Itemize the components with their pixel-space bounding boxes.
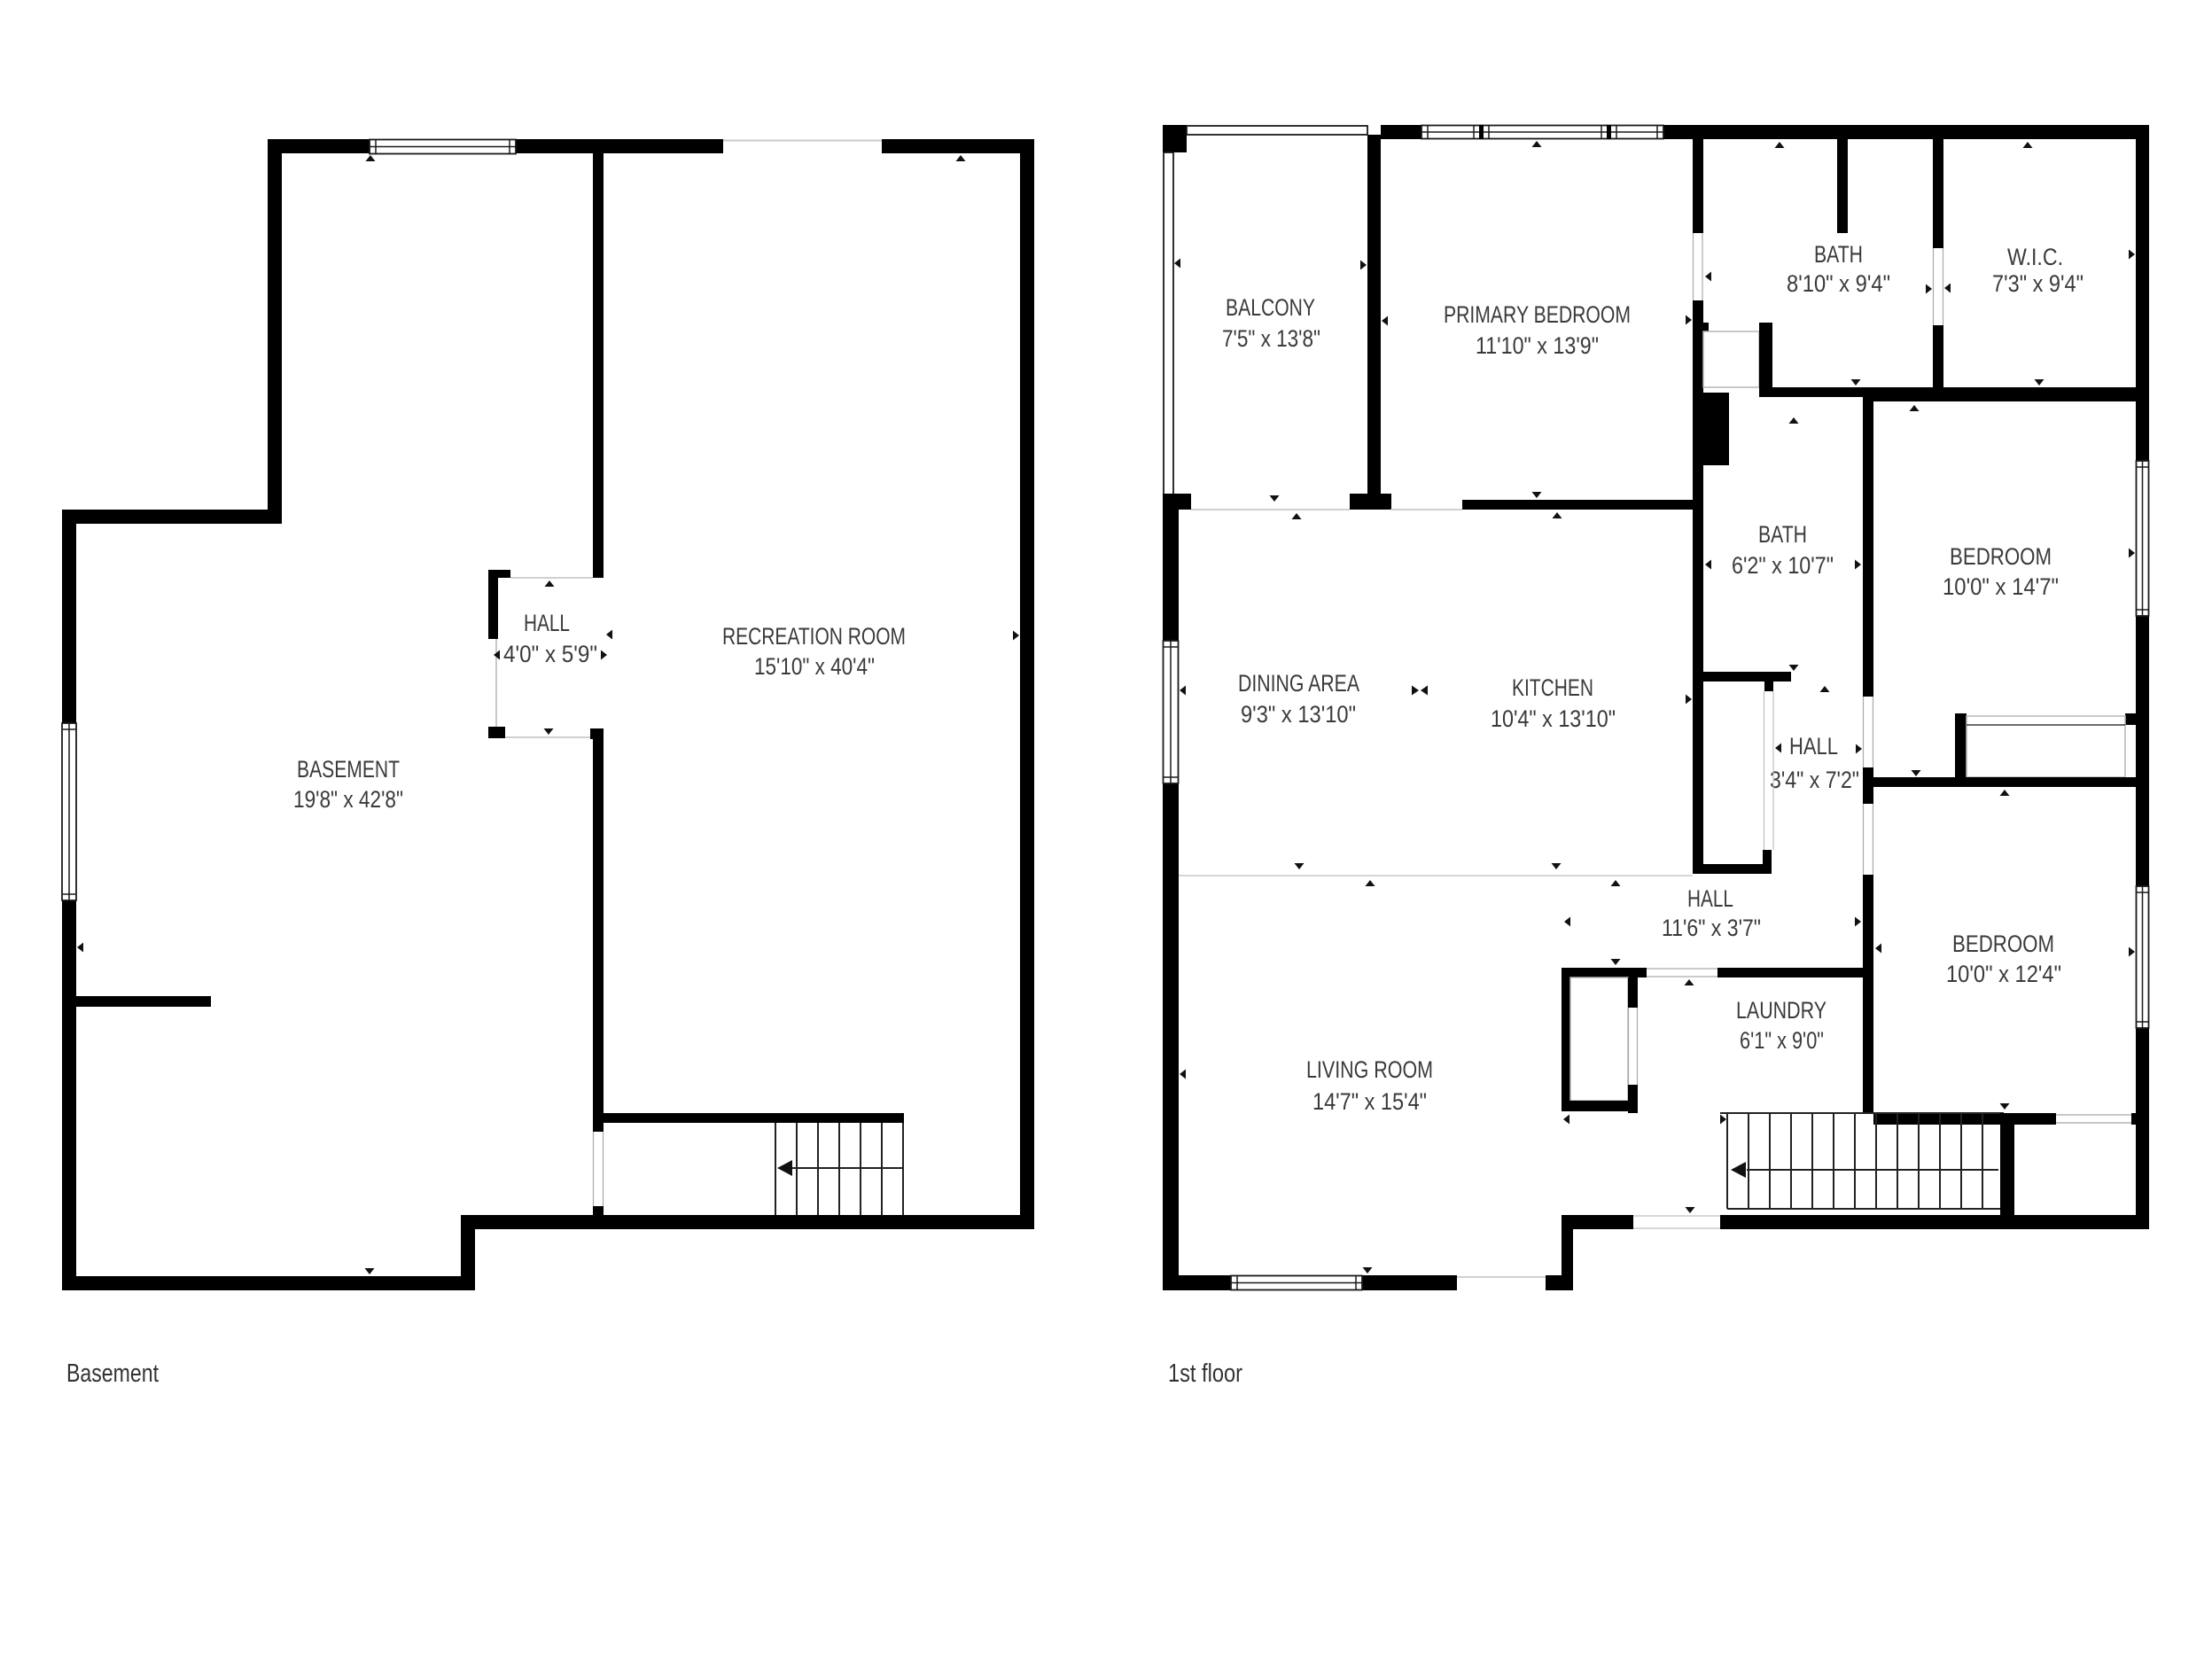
svg-text:10'0" x 14'7": 10'0" x 14'7" xyxy=(1943,573,2059,600)
svg-text:4'0" x 5'9": 4'0" x 5'9" xyxy=(503,641,597,667)
svg-text:9'3" x 13'10": 9'3" x 13'10" xyxy=(1241,701,1356,728)
svg-text:LAUNDRY: LAUNDRY xyxy=(1736,997,1826,1024)
svg-text:BATH: BATH xyxy=(1814,241,1863,268)
svg-text:HALL: HALL xyxy=(524,610,570,636)
svg-text:19'8" x 42'8": 19'8" x 42'8" xyxy=(293,786,403,813)
svg-text:HALL: HALL xyxy=(1687,885,1733,912)
svg-text:7'3" x 9'4": 7'3" x 9'4" xyxy=(1992,270,2083,297)
svg-text:LIVING ROOM: LIVING ROOM xyxy=(1306,1056,1433,1083)
svg-text:6'1" x 9'0": 6'1" x 9'0" xyxy=(1740,1027,1824,1054)
svg-text:10'4" x 13'10": 10'4" x 13'10" xyxy=(1491,705,1616,732)
svg-text:11'6" x 3'7": 11'6" x 3'7" xyxy=(1662,915,1761,941)
svg-text:1st floor: 1st floor xyxy=(1168,1359,1242,1388)
svg-text:PRIMARY BEDROOM: PRIMARY BEDROOM xyxy=(1444,301,1631,328)
svg-text:W.I.C.: W.I.C. xyxy=(2007,244,2063,270)
svg-text:10'0" x 12'4": 10'0" x 12'4" xyxy=(1946,961,2061,987)
svg-text:6'2" x 10'7": 6'2" x 10'7" xyxy=(1732,552,1834,579)
svg-text:HALL: HALL xyxy=(1789,733,1838,759)
svg-text:BALCONY: BALCONY xyxy=(1226,294,1315,321)
svg-text:Basement: Basement xyxy=(66,1359,159,1388)
svg-text:14'7" x 15'4": 14'7" x 15'4" xyxy=(1312,1088,1427,1115)
svg-text:7'5" x 13'8": 7'5" x 13'8" xyxy=(1222,325,1320,352)
svg-text:KITCHEN: KITCHEN xyxy=(1512,674,1593,701)
svg-text:3'4" x 7'2": 3'4" x 7'2" xyxy=(1770,767,1859,793)
svg-text:RECREATION ROOM: RECREATION ROOM xyxy=(722,623,906,650)
svg-text:BASEMENT: BASEMENT xyxy=(297,756,400,783)
svg-text:BEDROOM: BEDROOM xyxy=(1952,931,2054,957)
svg-text:15'10" x 40'4": 15'10" x 40'4" xyxy=(754,653,875,680)
svg-text:8'10" x 9'4": 8'10" x 9'4" xyxy=(1787,270,1890,297)
svg-text:11'10" x 13'9": 11'10" x 13'9" xyxy=(1476,332,1599,359)
svg-text:BEDROOM: BEDROOM xyxy=(1950,543,2052,570)
svg-text:DINING AREA: DINING AREA xyxy=(1238,670,1359,697)
svg-text:BATH: BATH xyxy=(1758,521,1807,548)
